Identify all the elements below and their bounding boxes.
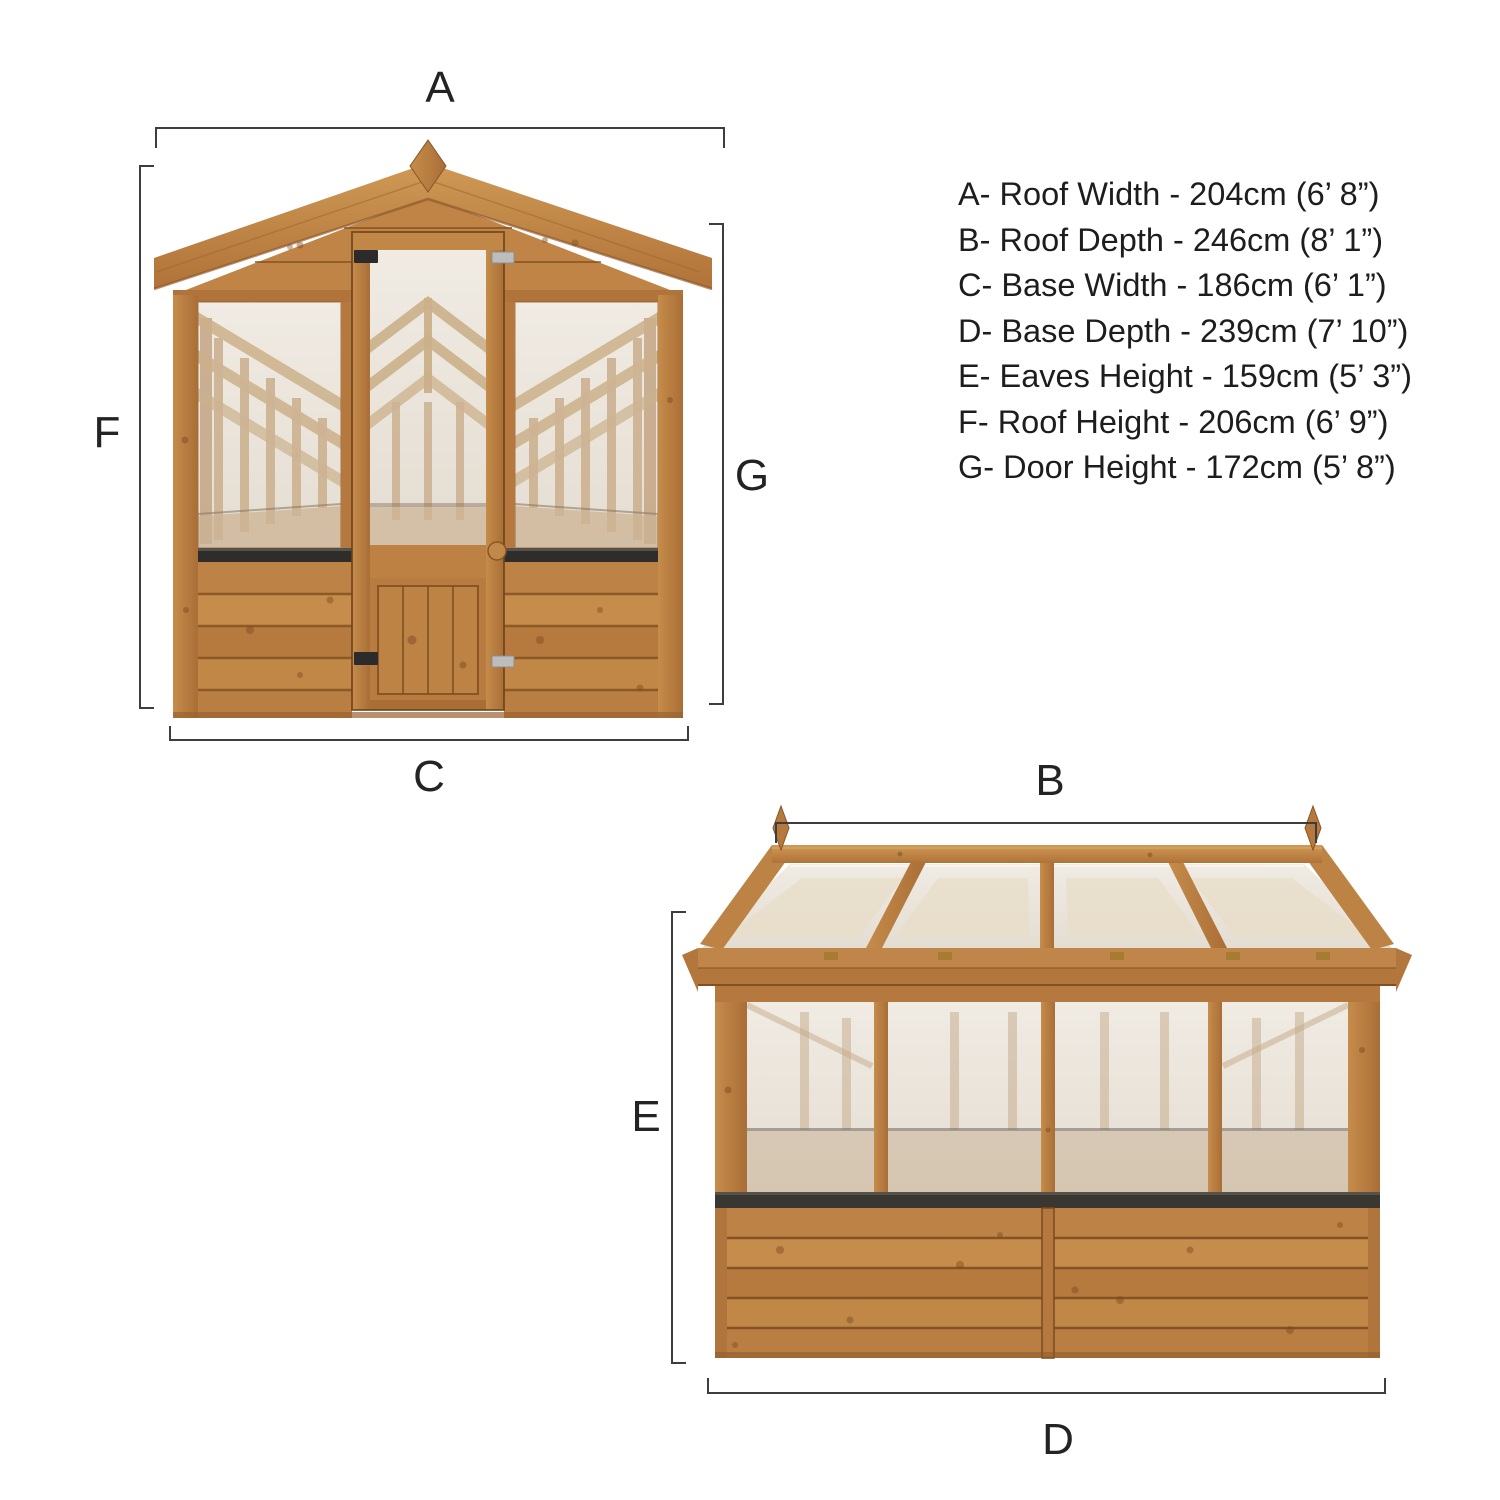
dim-door-height-line xyxy=(709,224,723,704)
side-lower-cladding xyxy=(715,1208,1380,1358)
legend-item: A- Roof Width - 204cm (6’ 8”) xyxy=(958,172,1412,218)
side-wall-glazing xyxy=(715,986,1380,1192)
dim-base-width-line xyxy=(170,726,688,740)
front-door-jamb-right xyxy=(504,302,515,548)
dim-label-base-depth: D xyxy=(1042,1418,1074,1462)
dim-label-roof-width: A xyxy=(425,66,454,110)
legend-item: E- Eaves Height - 159cm (5’ 3”) xyxy=(958,354,1412,400)
dim-label-eaves-height: E xyxy=(631,1095,660,1139)
dim-roof-depth-line xyxy=(776,823,1316,843)
front-left-window xyxy=(198,302,341,548)
legend-item: B- Roof Depth - 246cm (8’ 1”) xyxy=(958,218,1412,264)
greenhouse-dimension-diagram: A F G C B E D A- Roof Width - 204cm (6’ … xyxy=(0,0,1500,1500)
dim-base-depth-line xyxy=(708,1378,1385,1393)
door-latch-bottom-icon xyxy=(492,656,514,667)
dim-roof-height-line xyxy=(140,166,154,708)
dim-label-base-width: C xyxy=(413,755,445,799)
dimension-legend: A- Roof Width - 204cm (6’ 8”) B- Roof De… xyxy=(958,172,1412,491)
dim-label-roof-depth: B xyxy=(1035,759,1064,803)
dim-label-door-height: G xyxy=(735,454,769,498)
front-right-window xyxy=(515,302,658,548)
side-finial-right xyxy=(1305,806,1321,850)
front-base xyxy=(173,712,683,718)
door-knob xyxy=(488,542,506,560)
legend-item: D- Base Depth - 239cm (7’ 10”) xyxy=(958,309,1412,355)
dim-label-roof-height: F xyxy=(94,411,121,455)
side-view xyxy=(682,806,1412,1358)
side-sill xyxy=(715,1192,1380,1208)
front-view xyxy=(154,140,712,718)
legend-item: F- Roof Height - 206cm (6’ 9”) xyxy=(958,400,1412,446)
front-door-jamb-left xyxy=(341,302,352,548)
dim-roof-width-line xyxy=(156,128,724,148)
door-hinge-top-icon xyxy=(354,250,378,263)
door-latch-top-icon xyxy=(492,252,514,263)
dim-eaves-height-line xyxy=(672,912,686,1363)
side-ridge-beam xyxy=(772,845,1322,863)
legend-item: C- Base Width - 186cm (6’ 1”) xyxy=(958,263,1412,309)
side-eaves-beam xyxy=(682,948,1412,992)
door-hinge-bottom-icon xyxy=(354,652,378,665)
front-door xyxy=(352,232,514,710)
legend-item: G- Door Height - 172cm (5’ 8”) xyxy=(958,445,1412,491)
